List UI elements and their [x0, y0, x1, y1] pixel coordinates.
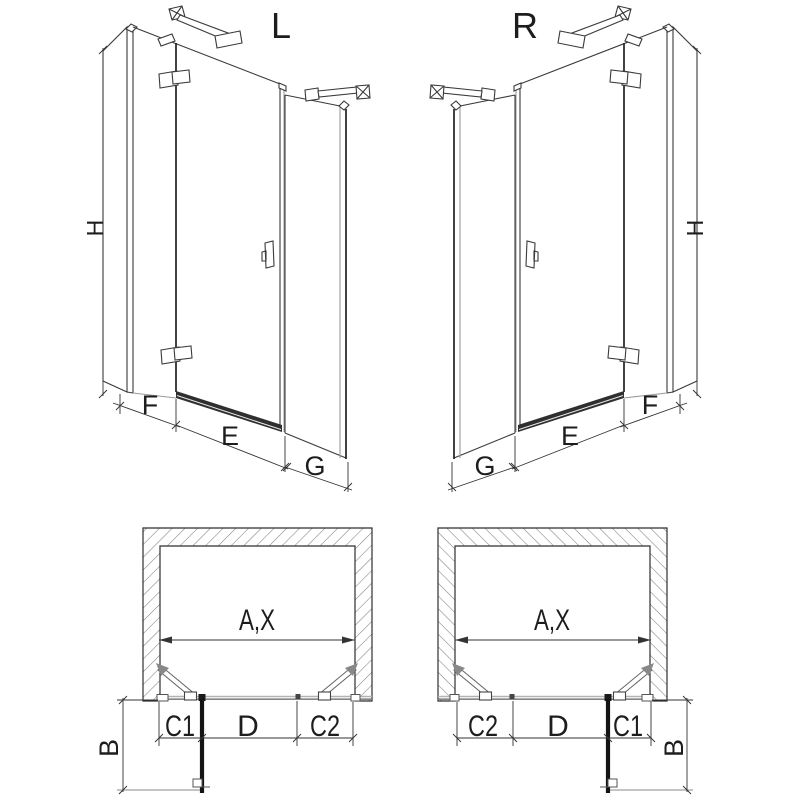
dim-label-b-left-plan: B: [94, 739, 124, 757]
view-label-right: R: [512, 5, 538, 46]
dim-label-c1-left-plan: C1: [165, 710, 195, 743]
plan-view-left: [117, 528, 372, 794]
view-label-left: L: [271, 5, 291, 46]
dim-label-g-left: G: [304, 451, 325, 481]
dim-label-e-left: E: [221, 421, 239, 451]
dim-label-e-right: E: [561, 421, 579, 451]
dim-label-f-left: F: [142, 390, 159, 420]
dim-label-c1-right-plan: C1: [613, 710, 643, 743]
dim-label-h-right: H: [682, 220, 708, 237]
dim-label-c2-left-plan: C2: [310, 710, 340, 743]
dim-label-b-right-plan: B: [659, 739, 689, 757]
dim-label-ax-right-plan: A,X: [534, 604, 570, 637]
dim-label-d-right-plan: D: [547, 710, 569, 743]
dim-label-h-left: H: [82, 220, 108, 237]
perspective-view-right: [430, 6, 701, 492]
dim-label-d-left-plan: D: [237, 710, 259, 743]
dim-label-g-right: G: [474, 451, 495, 481]
plan-view-right: [438, 528, 693, 794]
shower-door-technical-diagram: L H F E G R H F E G A,X C1 D C2 B A,X C2…: [0, 0, 800, 800]
dim-label-ax-left-plan: A,X: [239, 604, 275, 637]
dim-label-c2-right-plan: C2: [468, 710, 498, 743]
perspective-view-left: [99, 6, 370, 492]
dim-label-f-right: F: [642, 390, 659, 420]
